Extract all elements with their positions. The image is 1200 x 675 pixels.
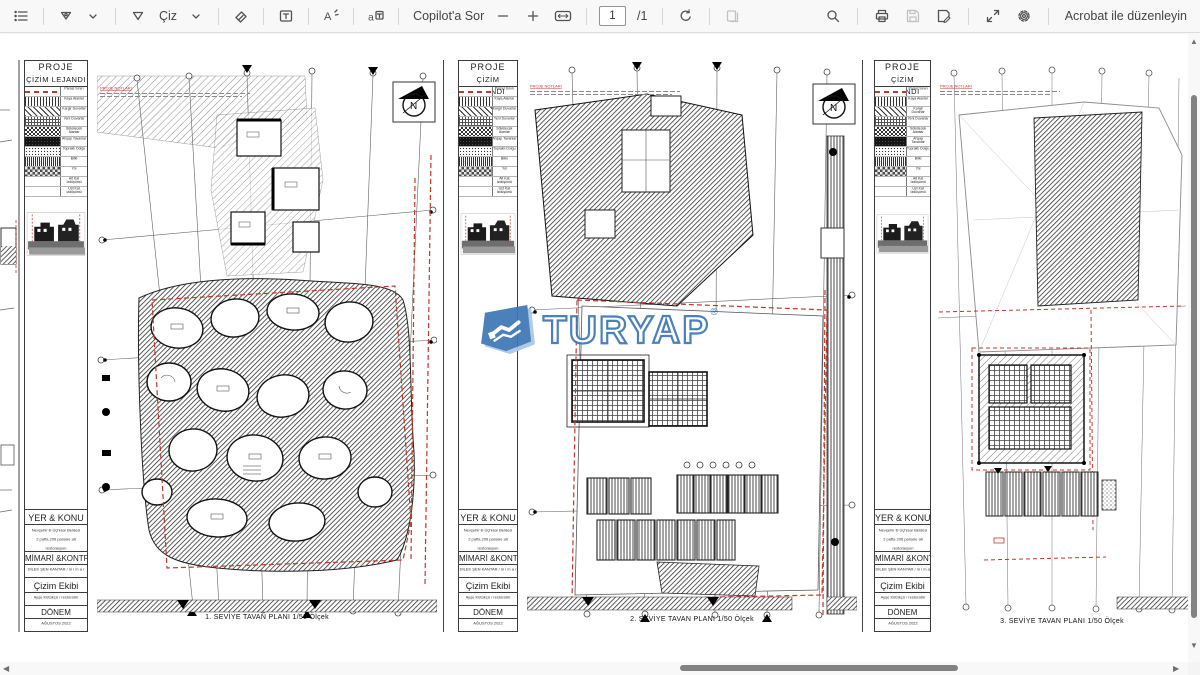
titleblock-location-text: Nevşehir ili Üçhisar Beldesi 2 pafta 206… (875, 525, 930, 551)
titleblock-architect-header: MİMARİ &KONTROL (459, 551, 517, 565)
contents-icon[interactable] (10, 3, 32, 29)
zoom-out-icon[interactable] (492, 3, 514, 29)
legend-pattern-swatch (875, 187, 907, 196)
legend-label: Kargir Duvarlar (493, 107, 517, 116)
legend-row: Topraklı Dolgu (25, 147, 87, 157)
legend-row: Alt Kat İzdüşümü (875, 177, 930, 187)
legend-label: Alt Kat İzdüşümü (61, 177, 87, 186)
legend-label: Kargir Duvarlar (61, 107, 87, 116)
titleblock-elevation-thumbnail (25, 209, 87, 259)
legend-label: Kargir Duvarlar (907, 107, 930, 116)
legend-row: Üst Kat İzdüşümü (459, 187, 517, 197)
print-icon[interactable] (871, 3, 893, 29)
legend-pattern-swatch (875, 147, 907, 156)
ask-copilot-button[interactable]: Copilot'a Sor (410, 9, 487, 23)
pdf-page: PROJE ÇİZİM LEJANDI Parsel SınırıKaya Al… (0, 34, 1188, 662)
fullscreen-icon[interactable] (982, 3, 1004, 29)
legend-label: Topraklı Dolgu (61, 147, 87, 156)
legend-pattern-swatch (875, 137, 907, 146)
legend-row: Parsel Sınırı (875, 87, 930, 97)
legend-pattern-swatch (25, 117, 61, 126)
translate-icon[interactable]: a (365, 3, 387, 29)
titleblock-team-header: Çizim Ekibi (875, 577, 930, 593)
project-notes-block: PROJE NOTLARI (100, 86, 270, 97)
save-as-icon[interactable] (933, 3, 955, 29)
titleblock-team-header: Çizim Ekibi (25, 577, 87, 593)
legend-pattern-swatch (25, 177, 61, 186)
legend-pattern-swatch (459, 167, 493, 176)
sheet-1-caption: 1. SEVİYE TAVAN PLANI 1/50 Ölçek (97, 614, 437, 621)
legend-row: Yol (25, 167, 87, 177)
titleblock-period-text: AĞUSTOS 2022 (459, 619, 517, 631)
scroll-down-arrow-icon[interactable]: ▼ (1190, 642, 1198, 650)
rotate-icon[interactable] (675, 3, 697, 29)
legend-label: Bitki (493, 157, 517, 166)
titleblock-architect-header: MİMARİ &KONTROL (875, 551, 930, 565)
legend-pattern-swatch (25, 87, 61, 96)
titleblock-period-header: DÖNEM (875, 605, 930, 619)
titleblock-location-text: Nevşehir ili Üçhisar Beldesi 2 pafta 206… (459, 525, 517, 551)
titleblock-legend-header: ÇİZİM LEJANDI (875, 74, 930, 87)
sheet-3-caption: 3. SEVİYE TAVAN PLANI 1/50 Ölçek (934, 618, 1190, 625)
legend-label: Bitki (907, 157, 930, 166)
svg-text:N: N (410, 101, 417, 112)
legend-row: Yeni Duvarlar (25, 117, 87, 127)
legend-label: Üst Kat İzdüşümü (907, 187, 930, 196)
left-cutoff-sheet-strip (0, 60, 20, 632)
legend-row: Üst Kat İzdüşümü (875, 187, 930, 197)
legend-pattern-swatch (25, 97, 61, 106)
legend-pattern-swatch (25, 137, 61, 146)
draw-pen-icon[interactable] (127, 3, 149, 29)
title-block-1: PROJE ÇİZİM LEJANDI Parsel SınırıKaya Al… (24, 60, 88, 632)
legend-row: Kargir Duvarlar (875, 107, 930, 117)
legend-pattern-swatch (459, 107, 493, 116)
legend-pattern-swatch (875, 177, 907, 186)
legend-label: Yol (61, 167, 87, 176)
scroll-up-arrow-icon[interactable]: ▲ (1190, 38, 1198, 46)
titleblock-architect-text: DİLEK ŞEN KANTAR / m i m a r (459, 565, 517, 577)
titleblock-team-header: Çizim Ekibi (459, 577, 517, 593)
titleblock-location-text: Nevşehir ili Üçhisar Beldesi 2 pafta 206… (25, 525, 87, 551)
north-arrow-icon: N (813, 84, 855, 124)
titleblock-team-text: Ayşe Kütükçü / restoratör (459, 593, 517, 605)
legend-label: Alt Kat İzdüşümü (493, 177, 517, 186)
plan-drawing-sheet-3 (934, 60, 1190, 632)
legend-row: Topraklı Dolgu (875, 147, 930, 157)
legend-label: Kaya Alanlar (907, 97, 930, 106)
legend-label: Parsel Sınırı (907, 87, 930, 96)
legend-row: Bitki (459, 157, 517, 167)
legend-pattern-swatch (25, 187, 61, 196)
legend-label: Kaya Alanlar (61, 97, 87, 106)
titleblock-legend: Parsel SınırıKaya AlanlarKargir Duvarlar… (459, 87, 517, 197)
legend-row: Kargir Duvarlar (25, 107, 87, 117)
legend-row: Bitki (875, 157, 930, 167)
titleblock-project-header: PROJE (459, 61, 517, 74)
legend-row: Ahşap Tavanlar (25, 137, 87, 147)
edit-in-acrobat-button[interactable]: Acrobat ile düzenleyin (1062, 9, 1190, 23)
legend-pattern-swatch (25, 147, 61, 156)
titleblock-project-header: PROJE (875, 61, 930, 74)
titleblock-elevation-thumbnail (459, 209, 517, 259)
svg-text:a: a (368, 12, 374, 24)
project-notes-block: PROJE NOTLARI (530, 84, 700, 95)
titleblock-location-header: YER & KONU (875, 509, 930, 525)
vertical-scrollbar-thumb[interactable] (1191, 95, 1197, 618)
legend-label: Ahşap Tavanlar (907, 137, 930, 146)
legend-row: Ahşap Tavanlar (875, 137, 930, 147)
legend-row: Sökülecek Alanlar (875, 127, 930, 137)
legend-pattern-swatch (459, 97, 493, 106)
titleblock-legend-header: ÇİZİM LEJANDI (459, 74, 517, 87)
draw-chevron-icon[interactable] (185, 3, 207, 29)
legend-label: Ahşap Tavanlar (61, 137, 87, 146)
search-icon[interactable] (822, 3, 844, 29)
legend-label: Yol (493, 167, 517, 176)
titleblock-elevation-thumbnail (875, 209, 930, 259)
legend-pattern-swatch (875, 107, 907, 116)
page-total-label: /1 (634, 9, 650, 23)
page-number-input[interactable] (599, 6, 626, 26)
legend-pattern-swatch (875, 97, 907, 106)
vertical-scrollbar[interactable]: ▲ ▼ (1188, 34, 1200, 662)
legend-label: Parsel Sınırı (61, 87, 87, 96)
scroll-right-arrow-icon[interactable]: ▶ (1173, 665, 1179, 673)
legend-pattern-swatch (459, 157, 493, 166)
legend-label: Sökülecek Alanlar (61, 127, 87, 136)
legend-row: Kaya Alanlar (459, 97, 517, 107)
legend-pattern-swatch (25, 127, 61, 136)
legend-label: Alt Kat İzdüşümü (907, 177, 930, 186)
legend-label: Sökülecek Alanlar (907, 127, 930, 136)
legend-pattern-swatch (875, 87, 907, 96)
legend-pattern-swatch (459, 137, 493, 146)
legend-row: Yol (459, 167, 517, 177)
horizontal-scrollbar[interactable]: ◀ ▶ (0, 662, 1188, 675)
legend-row: Yeni Duvarlar (875, 117, 930, 127)
titleblock-legend-header: ÇİZİM LEJANDI (25, 74, 87, 87)
legend-row: Sökülecek Alanlar (25, 127, 87, 137)
scroll-left-arrow-icon[interactable]: ◀ (3, 665, 9, 673)
settings-gear-icon[interactable] (1013, 3, 1035, 29)
legend-label: Kaya Alanlar (493, 97, 517, 106)
titleblock-project-header: PROJE (25, 61, 87, 74)
legend-row: Sökülecek Alanlar (459, 127, 517, 137)
legend-row: Yeni Duvarlar (459, 117, 517, 127)
titleblock-architect-text: DİLEK ŞEN KANTAR / m i m a r (25, 565, 87, 577)
legend-pattern-swatch (459, 127, 493, 136)
fit-to-width-icon[interactable] (552, 3, 574, 29)
pdf-toolbar: Çiz A a Copilot'a Sor (0, 0, 1200, 33)
eraser-icon[interactable] (230, 3, 252, 29)
sheet-2-caption: 2. SEVİYE TAVAN PLANI 1/50 Ölçek (527, 616, 857, 623)
north-arrow-icon: N (393, 82, 435, 122)
legend-row: Parsel Sınırı (459, 87, 517, 97)
legend-label: Sökülecek Alanlar (493, 127, 517, 136)
legend-pattern-swatch (459, 187, 493, 196)
sheet-separator (443, 60, 444, 632)
titleblock-location-header: YER & KONU (25, 509, 87, 525)
legend-label: Yol (907, 167, 930, 176)
project-notes-block: PROJE NOTLARI (940, 84, 1110, 95)
legend-row: Yol (875, 167, 930, 177)
page-view-icon (722, 3, 744, 29)
sheet-separator (862, 60, 863, 632)
legend-pattern-swatch (459, 147, 493, 156)
svg-text:A: A (324, 11, 332, 23)
legend-row: Alt Kat İzdüşümü (25, 177, 87, 187)
titleblock-legend: Parsel SınırıKaya AlanlarKargir Duvarlar… (875, 87, 930, 197)
legend-pattern-swatch (459, 117, 493, 126)
legend-label: Yeni Duvarlar (493, 117, 517, 126)
legend-pattern-swatch (459, 87, 493, 96)
legend-label: Topraklı Dolgu (907, 147, 930, 156)
scrollbar-corner (1188, 662, 1200, 675)
titleblock-team-text: Ayşe Kütükçü / restoratör (25, 593, 87, 605)
legend-label: Yeni Duvarlar (907, 117, 930, 126)
legend-label: Yeni Duvarlar (61, 117, 87, 126)
legend-label: Bitki (61, 157, 87, 166)
titleblock-team-text: Ayşe Kütükçü / restoratör (875, 593, 930, 605)
read-aloud-icon[interactable]: A (320, 3, 342, 29)
titleblock-period-header: DÖNEM (459, 605, 517, 619)
legend-label: Parsel Sınırı (493, 87, 517, 96)
highlighter-chevron-icon[interactable] (82, 3, 104, 29)
legend-row: Ahşap Tavanlar (459, 137, 517, 147)
legend-row: Alt Kat İzdüşümü (459, 177, 517, 187)
legend-pattern-swatch (25, 107, 61, 116)
plan-drawing-sheet-1: N (97, 60, 437, 632)
svg-text:N: N (830, 103, 837, 114)
save-icon (902, 3, 924, 29)
legend-pattern-swatch (25, 157, 61, 166)
legend-label: Topraklı Dolgu (493, 147, 517, 156)
legend-row: Kaya Alanlar (25, 97, 87, 107)
legend-label: Üst Kat İzdüşümü (61, 187, 87, 196)
titleblock-architect-text: DİLEK ŞEN KANTAR / m i m a r (875, 565, 930, 577)
text-box-icon[interactable] (275, 3, 297, 29)
title-block-2: PROJE ÇİZİM LEJANDI Parsel SınırıKaya Al… (458, 60, 518, 632)
legend-label: Ahşap Tavanlar (493, 137, 517, 146)
legend-pattern-swatch (875, 117, 907, 126)
horizontal-scrollbar-thumb[interactable] (680, 665, 958, 671)
legend-row: Kargir Duvarlar (459, 107, 517, 117)
legend-pattern-swatch (875, 127, 907, 136)
draw-label[interactable]: Çiz (156, 9, 180, 23)
title-block-3: PROJE ÇİZİM LEJANDI Parsel SınırıKaya Al… (874, 60, 931, 632)
titleblock-period-text: AĞUSTOS 2022 (875, 619, 930, 631)
titleblock-period-text: AĞUSTOS 2022 (25, 619, 87, 631)
legend-pattern-swatch (875, 157, 907, 166)
edge-pdf-viewer: Çiz A a Copilot'a Sor (0, 0, 1200, 675)
legend-row: Topraklı Dolgu (459, 147, 517, 157)
legend-row: Bitki (25, 157, 87, 167)
titleblock-architect-header: MİMARİ &KONTROL (25, 551, 87, 565)
legend-row: Parsel Sınırı (25, 87, 87, 97)
zoom-in-icon[interactable] (522, 3, 544, 29)
titleblock-location-header: YER & KONU (459, 509, 517, 525)
legend-label: Üst Kat İzdüşümü (493, 187, 517, 196)
legend-row: Üst Kat İzdüşümü (25, 187, 87, 197)
titleblock-legend: Parsel SınırıKaya AlanlarKargir Duvarlar… (25, 87, 87, 197)
titleblock-period-header: DÖNEM (25, 605, 87, 619)
highlighter-icon[interactable] (55, 3, 77, 29)
plan-drawing-sheet-2: N (527, 60, 857, 632)
legend-pattern-swatch (459, 177, 493, 186)
legend-row: Kaya Alanlar (875, 97, 930, 107)
legend-pattern-swatch (875, 167, 907, 176)
legend-pattern-swatch (25, 167, 61, 176)
